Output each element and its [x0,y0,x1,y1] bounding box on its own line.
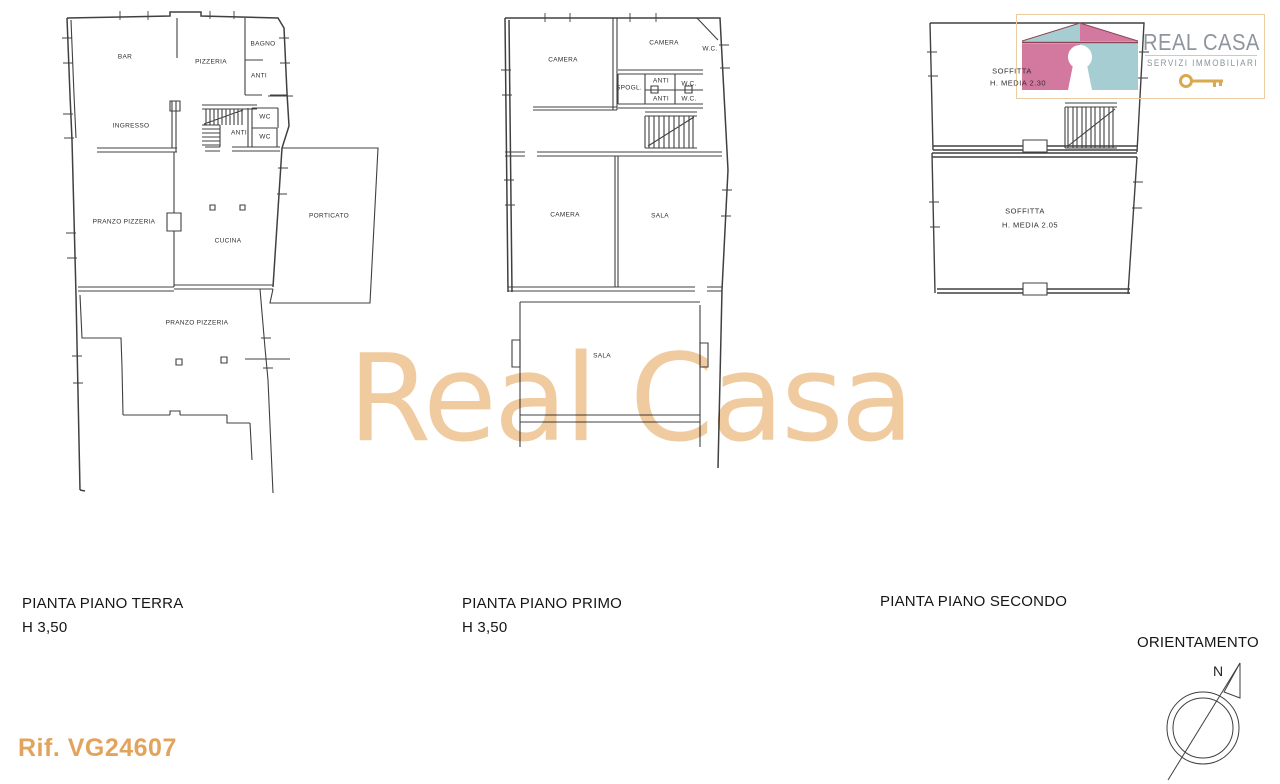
brand-divider [1145,55,1257,56]
room-label-cucina: CUCINA [215,238,242,245]
room-label-anti-3: ANTI [653,78,669,85]
room-label-spogliatoio: SPOGL. [616,85,642,92]
caption-piano-terra: PIANTA PIANO TERRA [22,595,183,612]
room-label-camera-2: CAMERA [649,40,679,47]
caption-terra-height: H 3,50 [22,619,67,636]
room-label-wc-1: WC [259,114,270,121]
room-label-sala-1: SALA [651,213,669,220]
compass-icon [1148,648,1264,784]
caption-piano-secondo: PIANTA PIANO SECONDO [880,593,1067,610]
room-label-anti-4: ANTI [653,96,669,103]
floor-plan-terra-drawing [60,8,390,500]
room-label-camera-1: CAMERA [548,57,578,64]
caption-piano-primo: PIANTA PIANO PRIMO [462,595,622,612]
room-label-pranzo-2: PRANZO PIZZERIA [166,320,229,327]
reference-number: Rif. VG24607 [18,734,177,763]
brand-name: REAL CASA [1143,29,1260,56]
agency-logo: REAL CASA SERVIZI IMMOBILIARI [1016,14,1265,99]
room-label-porticato: PORTICATO [309,213,349,220]
room-label-ingresso: INGRESSO [113,123,150,130]
room-label-wc-2: WC [259,134,270,141]
room-label-pizzeria: PIZZERIA [195,59,227,66]
brand-tagline: SERVIZI IMMOBILIARI [1147,58,1258,68]
room-label-h-media-205: H. MEDIA 2.05 [1002,221,1058,230]
room-label-camera-3: CAMERA [550,212,580,219]
room-label-wc-4: W.C. [681,81,696,88]
room-label-wc-5: W.C. [681,96,696,103]
room-label-bar: BAR [118,54,132,61]
watermark-text: Real Casa [348,340,911,460]
orientation-title: ORIENTAMENTO [1137,634,1259,651]
room-label-h-media-230: H. MEDIA 2.30 [990,79,1046,88]
room-label-wc-3: W.C. [702,46,717,53]
caption-primo-height: H 3,50 [462,619,507,636]
room-label-sala-2: SALA [593,353,611,360]
room-label-bagno: BAGNO [251,41,276,48]
room-label-pranzo-1: PRANZO PIZZERIA [93,219,156,226]
room-label-anti-1: ANTI [251,73,267,80]
room-label-soffitta-1: SOFFITTA [992,67,1032,76]
room-label-anti-2: ANTI [231,130,247,137]
room-label-soffitta-2: SOFFITTA [1005,207,1045,216]
key-icon [1179,73,1225,89]
north-label: N [1213,663,1223,679]
